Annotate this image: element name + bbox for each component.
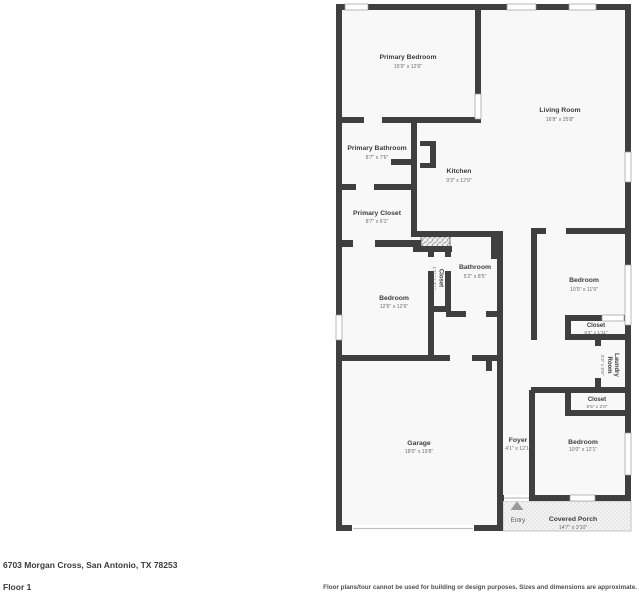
room-dims-bedroom-mid: 12'6" x 12'6" (380, 304, 409, 310)
room-dims-laundry: 3'3" x 5'6" (599, 355, 605, 376)
room-dims-primary-bedroom: 15'9" x 12'6" (394, 64, 423, 70)
room-dims-primary-bathroom: 8'7" x 7'6" (366, 155, 389, 161)
room-dims-primary-closet: 8'7" x 6'1" (366, 219, 389, 225)
room-label-bathroom: Bathroom (459, 264, 491, 271)
floorplan-page: { "floorplan": { "rooms": { "primary_bed… (0, 0, 639, 600)
window-icon (625, 152, 631, 182)
room-dims-bathroom: 5'2" x 8'5" (464, 274, 487, 280)
room-dims-closet-mid: 1'11" x 7'1" (431, 266, 437, 290)
room-label-closet-mid: Closet (438, 269, 444, 287)
room-dims-covered-porch: 14'7" x 3'10" (559, 525, 588, 531)
window-icon (336, 315, 342, 340)
window-icon (345, 4, 368, 10)
room-label-living-room: Living Room (539, 107, 580, 114)
room-label-primary-bedroom: Primary Bedroom (379, 54, 436, 61)
room-label-bedroom-right: Bedroom (569, 277, 599, 284)
room-label-foyer: Foyer (509, 437, 528, 444)
utility-hatch-area (421, 236, 450, 247)
closet-door-icon (602, 315, 624, 321)
room-label-laundry-line1: Laundry (613, 353, 619, 377)
room-label-kitchen: Kitchen (447, 168, 472, 175)
window-icon (625, 265, 631, 325)
room-label-laundry-line2: Room (606, 357, 612, 374)
room-label-primary-bathroom: Primary Bathroom (347, 145, 406, 152)
window-icon (625, 433, 631, 475)
room-dims-bedroom-front: 10'0" x 12'1" (569, 447, 598, 453)
room-label-bedroom-front: Bedroom (568, 439, 598, 446)
room-dims-foyer: 4'1" x 12'1" (505, 446, 531, 452)
room-dims-kitchen: 9'3" x 12'9" (446, 178, 472, 184)
room-label-garage: Garage (407, 440, 431, 447)
disclaimer-text: Floor plans/tour cannot be used for buil… (317, 584, 637, 591)
room-label-entry: Entry (511, 517, 526, 524)
room-dims-garage: 18'0" x 19'8" (405, 449, 434, 455)
room-dims-living-room: 16'8" x 25'8" (546, 117, 575, 123)
room-dims-closet-right: 6'4" x 1'11" (584, 330, 608, 336)
window-icon (570, 495, 595, 501)
room-label-closet-hall: Closet (588, 397, 606, 403)
room-label-closet-right: Closet (587, 323, 605, 329)
window-icon (569, 4, 596, 10)
window-icon (507, 4, 536, 10)
floor-plan: Primary Bedroom 15'9" x 12'6" Living Roo… (0, 0, 639, 600)
room-label-primary-closet: Primary Closet (353, 210, 402, 217)
wall-opening-icon (475, 94, 481, 119)
room-label-bedroom-mid: Bedroom (379, 295, 409, 302)
floor-label: Floor 1 (3, 582, 31, 592)
room-dims-bedroom-right: 10'0" x 11'9" (570, 287, 598, 293)
room-dims-closet-hall: 6'5" x 2'0" (587, 404, 608, 410)
room-label-covered-porch: Covered Porch (549, 516, 597, 523)
property-address: 6703 Morgan Cross, San Antonio, TX 78253 (3, 560, 177, 570)
